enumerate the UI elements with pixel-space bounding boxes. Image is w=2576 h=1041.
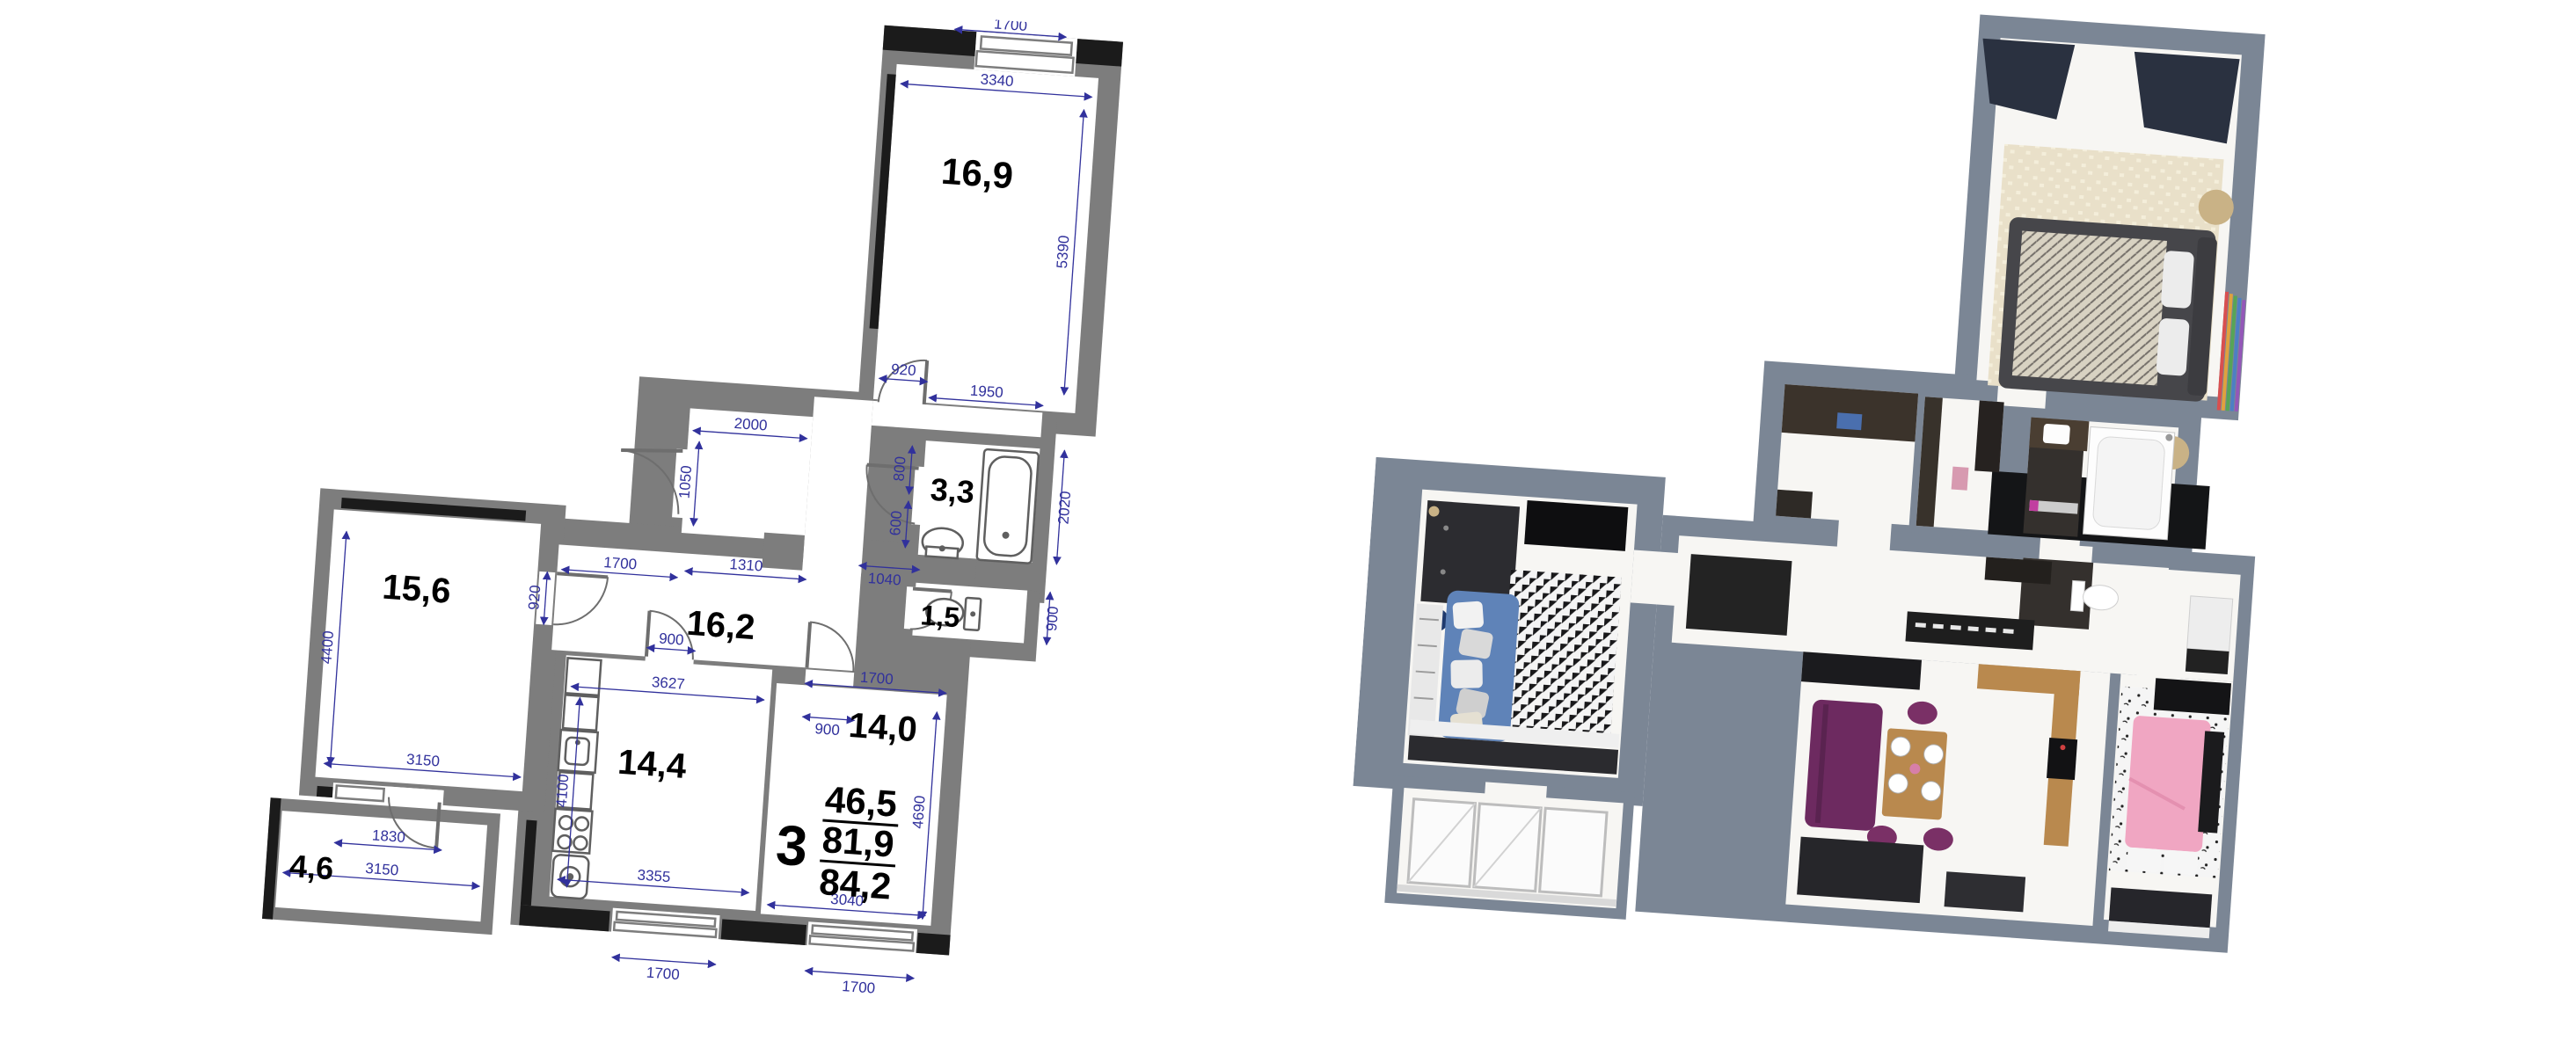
dim-bed-door: 920 (891, 360, 917, 379)
pillow (1450, 659, 1483, 688)
dim-kitchen-bottom: 3355 (637, 867, 671, 886)
triangle-rug (1500, 570, 1622, 739)
hall-cabinet (1985, 557, 2053, 584)
pillow (2127, 848, 2162, 873)
washing-machine-icon (551, 855, 589, 899)
label-hallway-area: 16,2 (685, 604, 756, 647)
dim-bed2-top: 1700 (859, 669, 894, 688)
kitchen-rug (1797, 837, 1923, 904)
bathtub-icon (977, 449, 1040, 564)
summary-rooms-count: 3 (774, 813, 810, 878)
doormat (1945, 871, 2026, 912)
dim-hall-top-h: 1050 (676, 465, 696, 499)
summary-heated-area: 81,9 (821, 819, 895, 865)
bed-blanket (2012, 230, 2167, 385)
label-bathroom-area: 3,3 (930, 471, 976, 510)
dim-bed-w: 3340 (980, 71, 1014, 91)
desk (2154, 678, 2231, 715)
dim-bath-door: 800 (891, 455, 909, 482)
oven (2047, 738, 2077, 780)
dresser (2187, 596, 2233, 652)
dim-hall-top-w: 2000 (733, 415, 768, 434)
dim-hall-left: 1700 (603, 554, 638, 573)
pillow (1452, 601, 1484, 629)
doormat (1686, 554, 1792, 636)
floor-plan-3d (1339, 0, 2296, 1041)
label-living-area: 15,6 (381, 568, 452, 611)
label-kitchen-area: 14,4 (617, 743, 688, 786)
label-wc-area: 1,5 (919, 599, 960, 633)
pillow (1458, 628, 1494, 659)
bathroom-3d (2023, 418, 2175, 543)
label-balcony-area: 4,6 (288, 848, 335, 886)
kitchen-sink-icon (558, 730, 598, 773)
stove-icon (552, 809, 592, 854)
dim-living-door: 920 (525, 585, 544, 611)
dim-bath-w: 1950 (969, 382, 1003, 402)
hall-corridor (802, 397, 873, 576)
dim-bed2-door: 900 (814, 720, 841, 739)
towel (2029, 500, 2039, 512)
decor-item (1952, 467, 1969, 491)
decor-item (1836, 412, 1862, 430)
dim-bed-h: 5390 (1054, 235, 1073, 269)
dim-living-h: 4400 (317, 630, 337, 665)
pillow (2161, 251, 2194, 309)
label-bedroom-area: 16,9 (940, 150, 1015, 197)
dim-bath-side: 600 (887, 510, 905, 536)
dim-win-kitchen: 1700 (646, 965, 680, 984)
summary-living-area: 46,5 (824, 778, 899, 825)
dim-balcony-door: 1830 (371, 826, 405, 846)
entry-cabinets (1782, 384, 1918, 441)
shoe-cabinet (1776, 490, 1813, 519)
dim-wc-h: 900 (1043, 606, 1062, 632)
dim-win-bed2: 1700 (842, 978, 876, 997)
dim-kitchen-h: 4100 (553, 774, 573, 808)
dresser-base (2186, 649, 2229, 674)
bathtub-inner (2092, 436, 2165, 530)
label-bedroom2-area: 14,0 (848, 706, 919, 749)
render-3d-svg (1339, 0, 2296, 1041)
dim-wc-w: 1040 (867, 570, 901, 589)
pillow (2164, 849, 2199, 875)
floor-plan-2d: 1700 3340 5390 920 1950 2000 1050 800 60… (217, 0, 1172, 1016)
dim-hall-mid: 1310 (729, 556, 763, 575)
pillow (2156, 318, 2189, 376)
floor-plan-svg: 1700 3340 5390 920 1950 2000 1050 800 60… (217, 0, 1172, 1016)
tv (1524, 500, 1628, 551)
room-living (315, 509, 541, 791)
dim-win-top: 1700 (994, 15, 1028, 34)
dim-bed2-h: 4690 (909, 795, 929, 829)
dim-living-w: 3150 (406, 751, 441, 770)
closet-shelf (1974, 401, 2004, 473)
balcony-3d (1397, 798, 1623, 906)
curtain (2109, 887, 2212, 928)
balcony-window (1540, 808, 1607, 896)
dim-bath-h: 2020 (1055, 491, 1075, 525)
wall-stub (762, 533, 805, 571)
bath-sink (2043, 424, 2070, 445)
summary-total-area: 84,2 (818, 861, 893, 907)
dim-balcony-w: 3150 (365, 860, 399, 879)
dim-kitchen-door: 900 (659, 630, 685, 649)
dim-kitchen-top: 3627 (651, 673, 685, 693)
